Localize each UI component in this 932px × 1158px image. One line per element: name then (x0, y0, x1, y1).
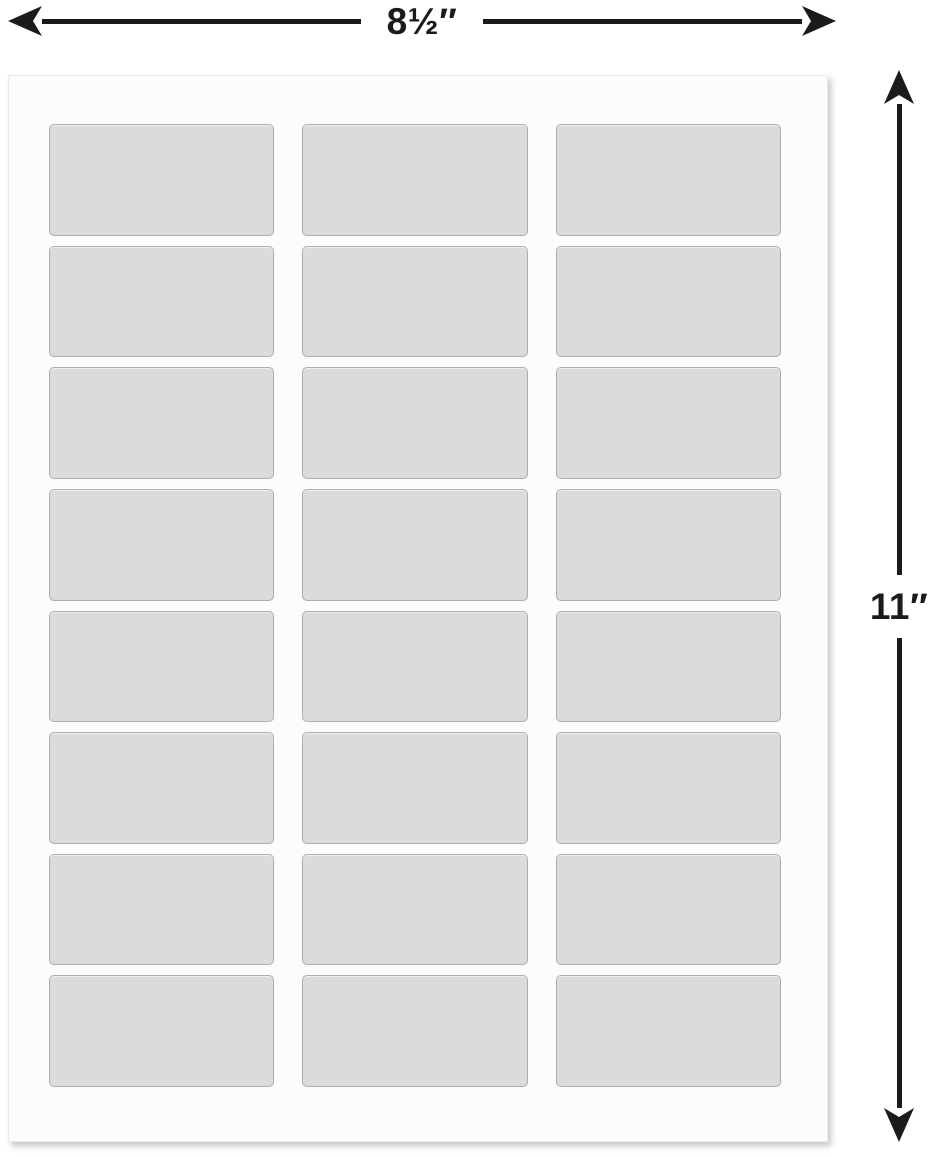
label-cell (302, 611, 527, 723)
dimension-line (897, 638, 902, 1109)
label-cell (302, 489, 527, 601)
label-cell (49, 975, 274, 1087)
label-cell (556, 611, 781, 723)
label-cell (556, 975, 781, 1087)
arrowhead-right-icon (802, 5, 836, 37)
label-cell (556, 246, 781, 358)
label-cell (302, 124, 527, 236)
dimension-line (897, 104, 902, 575)
arrowhead-left-icon (8, 5, 42, 37)
label-grid (49, 124, 781, 1087)
label-sheet-diagram: 8½″ 11″ (0, 0, 932, 1158)
label-cell (302, 975, 527, 1087)
label-cell (556, 854, 781, 966)
arrowhead-up-icon (883, 70, 915, 104)
dimension-line (42, 19, 361, 24)
label-cell (302, 367, 527, 479)
label-cell (49, 732, 274, 844)
label-cell (302, 854, 527, 966)
label-cell (49, 489, 274, 601)
width-dimension-label: 8½″ (387, 3, 458, 40)
label-cell (49, 854, 274, 966)
label-cell (556, 489, 781, 601)
label-cell (556, 124, 781, 236)
arrowhead-down-icon (883, 1108, 915, 1142)
label-cell (49, 124, 274, 236)
label-cell (556, 732, 781, 844)
height-dimension-label: 11″ (870, 588, 928, 625)
label-cell (49, 367, 274, 479)
width-dimension: 8½″ (8, 0, 836, 42)
label-cell (49, 611, 274, 723)
label-cell (302, 732, 527, 844)
label-cell (556, 367, 781, 479)
label-cell (49, 246, 274, 358)
height-dimension: 11″ (866, 70, 932, 1142)
label-cell (302, 246, 527, 358)
dimension-line (483, 19, 802, 24)
label-sheet (8, 75, 828, 1142)
